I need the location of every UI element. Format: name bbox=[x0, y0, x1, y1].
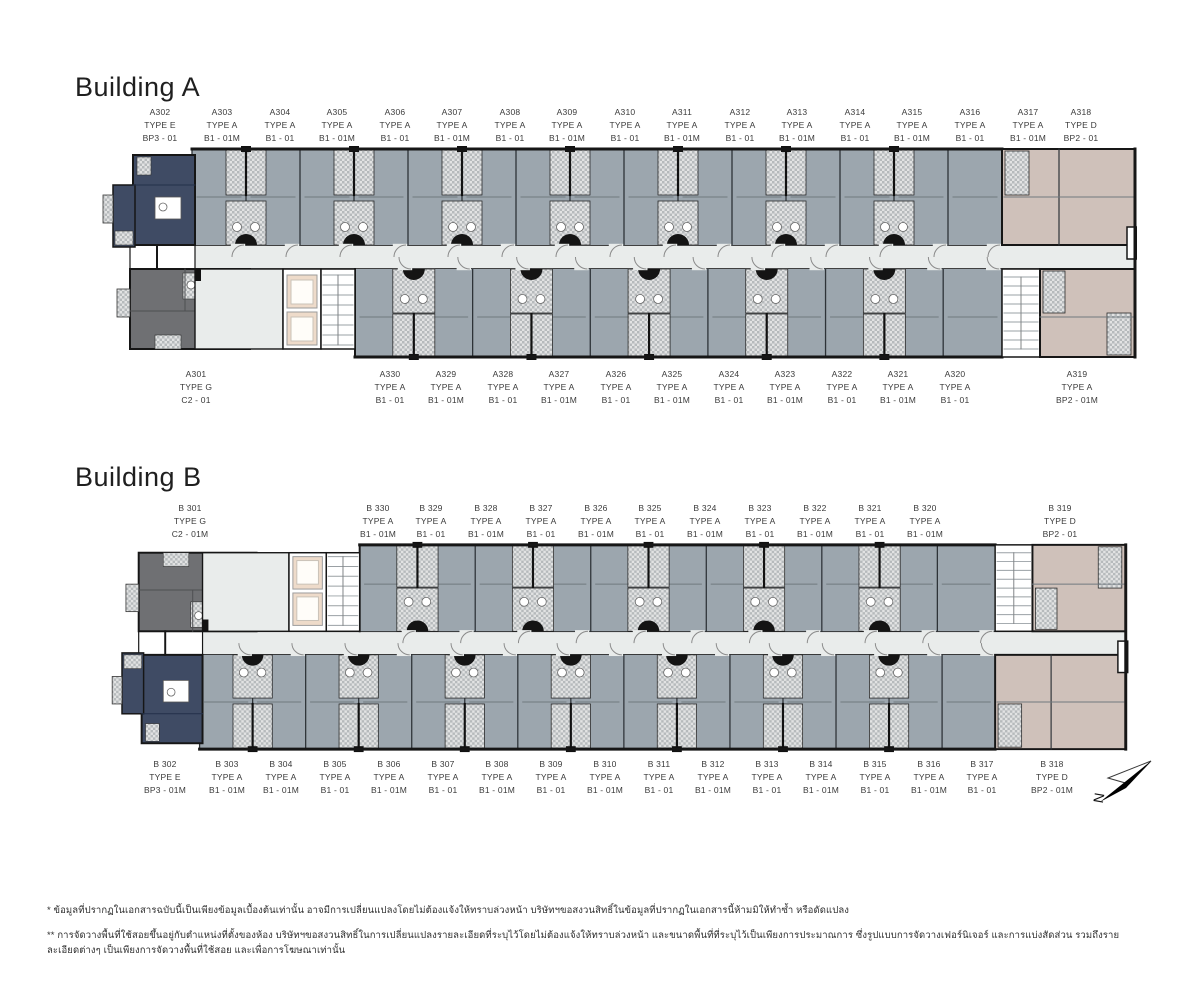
unit-type: TYPE A bbox=[807, 381, 877, 394]
unit-label-a321: A321TYPE AB1 - 01M bbox=[863, 368, 933, 408]
unit-label-a314: A314TYPE AB1 - 01 bbox=[820, 106, 890, 146]
unit-plan-code: B1 - 01M bbox=[894, 784, 964, 797]
building-a-floorplan bbox=[97, 141, 1137, 365]
unit-plan-code: B1 - 01 bbox=[807, 394, 877, 407]
unit-plan-code: B1 - 01M bbox=[524, 394, 594, 407]
unit-type: TYPE A bbox=[475, 119, 545, 132]
unit-label-a326: A326TYPE AB1 - 01 bbox=[581, 368, 651, 408]
unit-plan-code: B1 - 01M bbox=[863, 394, 933, 407]
unit-plan-code: B1 - 01 bbox=[694, 394, 764, 407]
unit-plan-code: B1 - 01M bbox=[246, 784, 316, 797]
unit-number: A315 bbox=[877, 106, 947, 119]
unit-plan-code: C2 - 01 bbox=[161, 394, 231, 407]
unit-type: TYPE A bbox=[524, 381, 594, 394]
unit-type: TYPE A bbox=[532, 119, 602, 132]
unit-number: B 330 bbox=[343, 502, 413, 515]
unit-number: A330 bbox=[355, 368, 425, 381]
unit-number: B 324 bbox=[670, 502, 740, 515]
unit-label-b323: B 323TYPE AB1 - 01 bbox=[725, 502, 795, 542]
unit-number: B 319 bbox=[1025, 502, 1095, 515]
unit-type: TYPE A bbox=[615, 515, 685, 528]
unit-label-a307: A307TYPE AB1 - 01M bbox=[417, 106, 487, 146]
unit-plan-code: B1 - 01 bbox=[732, 784, 802, 797]
unit-plan-code: B1 - 01 bbox=[408, 784, 478, 797]
unit-type: TYPE A bbox=[581, 381, 651, 394]
unit-label-a302: A302TYPE EBP3 - 01 bbox=[125, 106, 195, 146]
unit-label-a308: A308TYPE AB1 - 01 bbox=[475, 106, 545, 146]
unit-number: B 307 bbox=[408, 758, 478, 771]
unit-number: A324 bbox=[694, 368, 764, 381]
unit-type: TYPE A bbox=[835, 515, 905, 528]
unit-label-b304: B 304TYPE AB1 - 01M bbox=[246, 758, 316, 798]
building-a-title: Building A bbox=[75, 72, 200, 103]
unit-type: TYPE A bbox=[694, 381, 764, 394]
unit-number: B 309 bbox=[516, 758, 586, 771]
unit-number: B 325 bbox=[615, 502, 685, 515]
unit-label-a318: A318TYPE DBP2 - 01 bbox=[1046, 106, 1116, 146]
unit-label-a330: A330TYPE AB1 - 01 bbox=[355, 368, 425, 408]
unit-type: TYPE A bbox=[408, 771, 478, 784]
unit-type: TYPE A bbox=[820, 119, 890, 132]
unit-number: A302 bbox=[125, 106, 195, 119]
unit-type: TYPE A bbox=[246, 771, 316, 784]
unit-label-a324: A324TYPE AB1 - 01 bbox=[694, 368, 764, 408]
unit-number: A325 bbox=[637, 368, 707, 381]
unit-type: TYPE A bbox=[590, 119, 660, 132]
unit-number: A301 bbox=[161, 368, 231, 381]
unit-number: A309 bbox=[532, 106, 602, 119]
unit-label-b318: B 318TYPE DBP2 - 01M bbox=[1017, 758, 1087, 798]
unit-plan-code: B1 - 01M bbox=[354, 784, 424, 797]
unit-plan-code: B1 - 01 bbox=[920, 394, 990, 407]
unit-label-a303: A303TYPE AB1 - 01M bbox=[187, 106, 257, 146]
unit-type: TYPE A bbox=[396, 515, 466, 528]
unit-type: TYPE A bbox=[993, 119, 1063, 132]
unit-label-a311: A311TYPE AB1 - 01M bbox=[647, 106, 717, 146]
unit-number: A317 bbox=[993, 106, 1063, 119]
unit-type: TYPE A bbox=[355, 381, 425, 394]
unit-type: TYPE A bbox=[732, 771, 802, 784]
unit-label-b319: B 319TYPE DBP2 - 01 bbox=[1025, 502, 1095, 542]
unit-number: A312 bbox=[705, 106, 775, 119]
unit-type: TYPE A bbox=[670, 515, 740, 528]
unit-label-b302: B 302TYPE EBP3 - 01M bbox=[130, 758, 200, 798]
unit-label-a322: A322TYPE AB1 - 01 bbox=[807, 368, 877, 408]
unit-plan-code: BP2 - 01M bbox=[1017, 784, 1087, 797]
unit-label-a309: A309TYPE AB1 - 01M bbox=[532, 106, 602, 146]
unit-label-a312: A312TYPE AB1 - 01 bbox=[705, 106, 775, 146]
unit-plan-code: B1 - 01M bbox=[192, 784, 262, 797]
unit-number: B 305 bbox=[300, 758, 370, 771]
unit-number: A329 bbox=[411, 368, 481, 381]
unit-number: B 326 bbox=[561, 502, 631, 515]
unit-number: A307 bbox=[417, 106, 487, 119]
unit-type: TYPE A bbox=[780, 515, 850, 528]
unit-label-a317: A317TYPE AB1 - 01M bbox=[993, 106, 1063, 146]
unit-number: A311 bbox=[647, 106, 717, 119]
unit-label-a301: A301TYPE GC2 - 01 bbox=[161, 368, 231, 408]
unit-type: TYPE A bbox=[947, 771, 1017, 784]
unit-type: TYPE A bbox=[935, 119, 1005, 132]
unit-label-b321: B 321TYPE AB1 - 01 bbox=[835, 502, 905, 542]
unit-type: TYPE A bbox=[725, 515, 795, 528]
unit-label-a325: A325TYPE AB1 - 01M bbox=[637, 368, 707, 408]
unit-type: TYPE A bbox=[417, 119, 487, 132]
unit-type: TYPE A bbox=[360, 119, 430, 132]
unit-number: A326 bbox=[581, 368, 651, 381]
unit-label-a329: A329TYPE AB1 - 01M bbox=[411, 368, 481, 408]
unit-type: TYPE A bbox=[411, 381, 481, 394]
unit-label-b325: B 325TYPE AB1 - 01 bbox=[615, 502, 685, 542]
unit-type: TYPE A bbox=[840, 771, 910, 784]
unit-plan-code: B1 - 01M bbox=[411, 394, 481, 407]
unit-type: TYPE A bbox=[890, 515, 960, 528]
unit-number: A316 bbox=[935, 106, 1005, 119]
unit-label-b317: B 317TYPE AB1 - 01 bbox=[947, 758, 1017, 798]
north-arrow: N bbox=[1093, 756, 1155, 818]
unit-label-a306: A306TYPE AB1 - 01 bbox=[360, 106, 430, 146]
unit-label-b312: B 312TYPE AB1 - 01M bbox=[678, 758, 748, 798]
unit-type: TYPE E bbox=[125, 119, 195, 132]
unit-label-b320: B 320TYPE AB1 - 01M bbox=[890, 502, 960, 542]
unit-label-a304: A304TYPE AB1 - 01 bbox=[245, 106, 315, 146]
unit-label-b328: B 328TYPE AB1 - 01M bbox=[451, 502, 521, 542]
unit-type: TYPE D bbox=[1017, 771, 1087, 784]
unit-label-b327: B 327TYPE AB1 - 01 bbox=[506, 502, 576, 542]
unit-plan-code: B1 - 01 bbox=[581, 394, 651, 407]
unit-type: TYPE A bbox=[451, 515, 521, 528]
unit-type: TYPE A bbox=[561, 515, 631, 528]
footnote-2: ** การจัดวางพื้นที่ใช้สอยขึ้นอยู่กับตำแห… bbox=[47, 928, 1147, 958]
unit-number: A308 bbox=[475, 106, 545, 119]
unit-type: TYPE A bbox=[300, 771, 370, 784]
unit-number: B 327 bbox=[506, 502, 576, 515]
building-b-floorplan bbox=[97, 537, 1137, 757]
unit-plan-code: BP3 - 01M bbox=[130, 784, 200, 797]
unit-number: B 315 bbox=[840, 758, 910, 771]
unit-number: B 318 bbox=[1017, 758, 1087, 771]
unit-number: A313 bbox=[762, 106, 832, 119]
building-b-title: Building B bbox=[75, 462, 202, 493]
unit-plan-code: B1 - 01M bbox=[462, 784, 532, 797]
unit-type: TYPE A bbox=[877, 119, 947, 132]
unit-label-b330: B 330TYPE AB1 - 01M bbox=[343, 502, 413, 542]
unit-label-b329: B 329TYPE AB1 - 01 bbox=[396, 502, 466, 542]
unit-type: TYPE A bbox=[705, 119, 775, 132]
unit-number: A306 bbox=[360, 106, 430, 119]
unit-type: TYPE A bbox=[468, 381, 538, 394]
unit-number: A321 bbox=[863, 368, 933, 381]
unit-type: TYPE A bbox=[354, 771, 424, 784]
unit-label-b305: B 305TYPE AB1 - 01 bbox=[300, 758, 370, 798]
unit-label-b309: B 309TYPE AB1 - 01 bbox=[516, 758, 586, 798]
unit-type: TYPE A bbox=[187, 119, 257, 132]
unit-number: B 310 bbox=[570, 758, 640, 771]
unit-type: TYPE A bbox=[302, 119, 372, 132]
unit-number: B 302 bbox=[130, 758, 200, 771]
unit-plan-code: B1 - 01M bbox=[750, 394, 820, 407]
unit-label-b303: B 303TYPE AB1 - 01M bbox=[192, 758, 262, 798]
unit-number: B 321 bbox=[835, 502, 905, 515]
unit-number: B 320 bbox=[890, 502, 960, 515]
unit-plan-code: B1 - 01 bbox=[840, 784, 910, 797]
unit-label-a319: A319TYPE ABP2 - 01M bbox=[1042, 368, 1112, 408]
unit-plan-code: B1 - 01 bbox=[947, 784, 1017, 797]
unit-label-a323: A323TYPE AB1 - 01M bbox=[750, 368, 820, 408]
unit-number: B 313 bbox=[732, 758, 802, 771]
unit-number: B 311 bbox=[624, 758, 694, 771]
unit-label-a316: A316TYPE AB1 - 01 bbox=[935, 106, 1005, 146]
unit-label-a320: A320TYPE AB1 - 01 bbox=[920, 368, 990, 408]
unit-number: B 304 bbox=[246, 758, 316, 771]
unit-label-b315: B 315TYPE AB1 - 01 bbox=[840, 758, 910, 798]
unit-type: TYPE A bbox=[647, 119, 717, 132]
unit-plan-code: B1 - 01 bbox=[516, 784, 586, 797]
unit-type: TYPE A bbox=[863, 381, 933, 394]
unit-label-b301: B 301TYPE GC2 - 01M bbox=[155, 502, 225, 542]
unit-number: B 301 bbox=[155, 502, 225, 515]
unit-type: TYPE D bbox=[1025, 515, 1095, 528]
unit-type: TYPE A bbox=[786, 771, 856, 784]
unit-label-a305: A305TYPE AB1 - 01M bbox=[302, 106, 372, 146]
unit-label-b316: B 316TYPE AB1 - 01M bbox=[894, 758, 964, 798]
unit-plan-code: BP2 - 01M bbox=[1042, 394, 1112, 407]
north-arrow-icon bbox=[1093, 756, 1155, 818]
unit-plan-code: B1 - 01 bbox=[300, 784, 370, 797]
unit-number: B 316 bbox=[894, 758, 964, 771]
unit-number: B 312 bbox=[678, 758, 748, 771]
unit-number: B 308 bbox=[462, 758, 532, 771]
unit-number: A328 bbox=[468, 368, 538, 381]
unit-plan-code: B1 - 01 bbox=[355, 394, 425, 407]
unit-plan-code: B1 - 01 bbox=[468, 394, 538, 407]
unit-label-a310: A310TYPE AB1 - 01 bbox=[590, 106, 660, 146]
unit-label-b314: B 314TYPE AB1 - 01M bbox=[786, 758, 856, 798]
unit-type: TYPE A bbox=[462, 771, 532, 784]
unit-label-b313: B 313TYPE AB1 - 01 bbox=[732, 758, 802, 798]
unit-label-b306: B 306TYPE AB1 - 01M bbox=[354, 758, 424, 798]
unit-plan-code: B1 - 01 bbox=[624, 784, 694, 797]
unit-type: TYPE A bbox=[637, 381, 707, 394]
unit-plan-code: B1 - 01M bbox=[678, 784, 748, 797]
unit-label-b308: B 308TYPE AB1 - 01M bbox=[462, 758, 532, 798]
unit-number: A303 bbox=[187, 106, 257, 119]
unit-number: A305 bbox=[302, 106, 372, 119]
unit-type: TYPE A bbox=[192, 771, 262, 784]
floorplan-page: Building A Building B A302TYPE EBP3 - 01… bbox=[0, 0, 1187, 981]
unit-type: TYPE A bbox=[920, 381, 990, 394]
unit-number: B 328 bbox=[451, 502, 521, 515]
unit-plan-code: B1 - 01M bbox=[786, 784, 856, 797]
unit-label-a315: A315TYPE AB1 - 01M bbox=[877, 106, 947, 146]
unit-type: TYPE A bbox=[343, 515, 413, 528]
unit-label-b322: B 322TYPE AB1 - 01M bbox=[780, 502, 850, 542]
unit-type: TYPE G bbox=[155, 515, 225, 528]
unit-type: TYPE A bbox=[1042, 381, 1112, 394]
unit-label-a327: A327TYPE AB1 - 01M bbox=[524, 368, 594, 408]
unit-type: TYPE A bbox=[245, 119, 315, 132]
unit-type: TYPE E bbox=[130, 771, 200, 784]
unit-number: B 306 bbox=[354, 758, 424, 771]
unit-type: TYPE A bbox=[516, 771, 586, 784]
unit-label-b326: B 326TYPE AB1 - 01M bbox=[561, 502, 631, 542]
unit-number: B 303 bbox=[192, 758, 262, 771]
unit-number: A304 bbox=[245, 106, 315, 119]
footnote-1: * ข้อมูลที่ปรากฏในเอกสารฉบับนี้เป็นเพียง… bbox=[47, 903, 1147, 918]
unit-plan-code: B1 - 01M bbox=[570, 784, 640, 797]
unit-number: A319 bbox=[1042, 368, 1112, 381]
unit-type: TYPE A bbox=[506, 515, 576, 528]
unit-number: A327 bbox=[524, 368, 594, 381]
unit-label-b324: B 324TYPE AB1 - 01M bbox=[670, 502, 740, 542]
unit-type: TYPE A bbox=[570, 771, 640, 784]
unit-label-a313: A313TYPE AB1 - 01M bbox=[762, 106, 832, 146]
unit-type: TYPE G bbox=[161, 381, 231, 394]
unit-number: B 322 bbox=[780, 502, 850, 515]
unit-number: A323 bbox=[750, 368, 820, 381]
unit-type: TYPE D bbox=[1046, 119, 1116, 132]
unit-label-b307: B 307TYPE AB1 - 01 bbox=[408, 758, 478, 798]
unit-type: TYPE A bbox=[762, 119, 832, 132]
unit-plan-code: B1 - 01M bbox=[637, 394, 707, 407]
unit-label-a328: A328TYPE AB1 - 01 bbox=[468, 368, 538, 408]
unit-number: A310 bbox=[590, 106, 660, 119]
unit-number: B 323 bbox=[725, 502, 795, 515]
unit-number: A314 bbox=[820, 106, 890, 119]
unit-number: A322 bbox=[807, 368, 877, 381]
unit-label-b310: B 310TYPE AB1 - 01M bbox=[570, 758, 640, 798]
unit-label-b311: B 311TYPE AB1 - 01 bbox=[624, 758, 694, 798]
unit-type: TYPE A bbox=[624, 771, 694, 784]
footnotes: * ข้อมูลที่ปรากฏในเอกสารฉบับนี้เป็นเพียง… bbox=[47, 903, 1147, 968]
unit-number: B 314 bbox=[786, 758, 856, 771]
unit-number: A320 bbox=[920, 368, 990, 381]
unit-type: TYPE A bbox=[894, 771, 964, 784]
unit-type: TYPE A bbox=[678, 771, 748, 784]
unit-number: B 317 bbox=[947, 758, 1017, 771]
unit-type: TYPE A bbox=[750, 381, 820, 394]
unit-number: A318 bbox=[1046, 106, 1116, 119]
unit-number: B 329 bbox=[396, 502, 466, 515]
